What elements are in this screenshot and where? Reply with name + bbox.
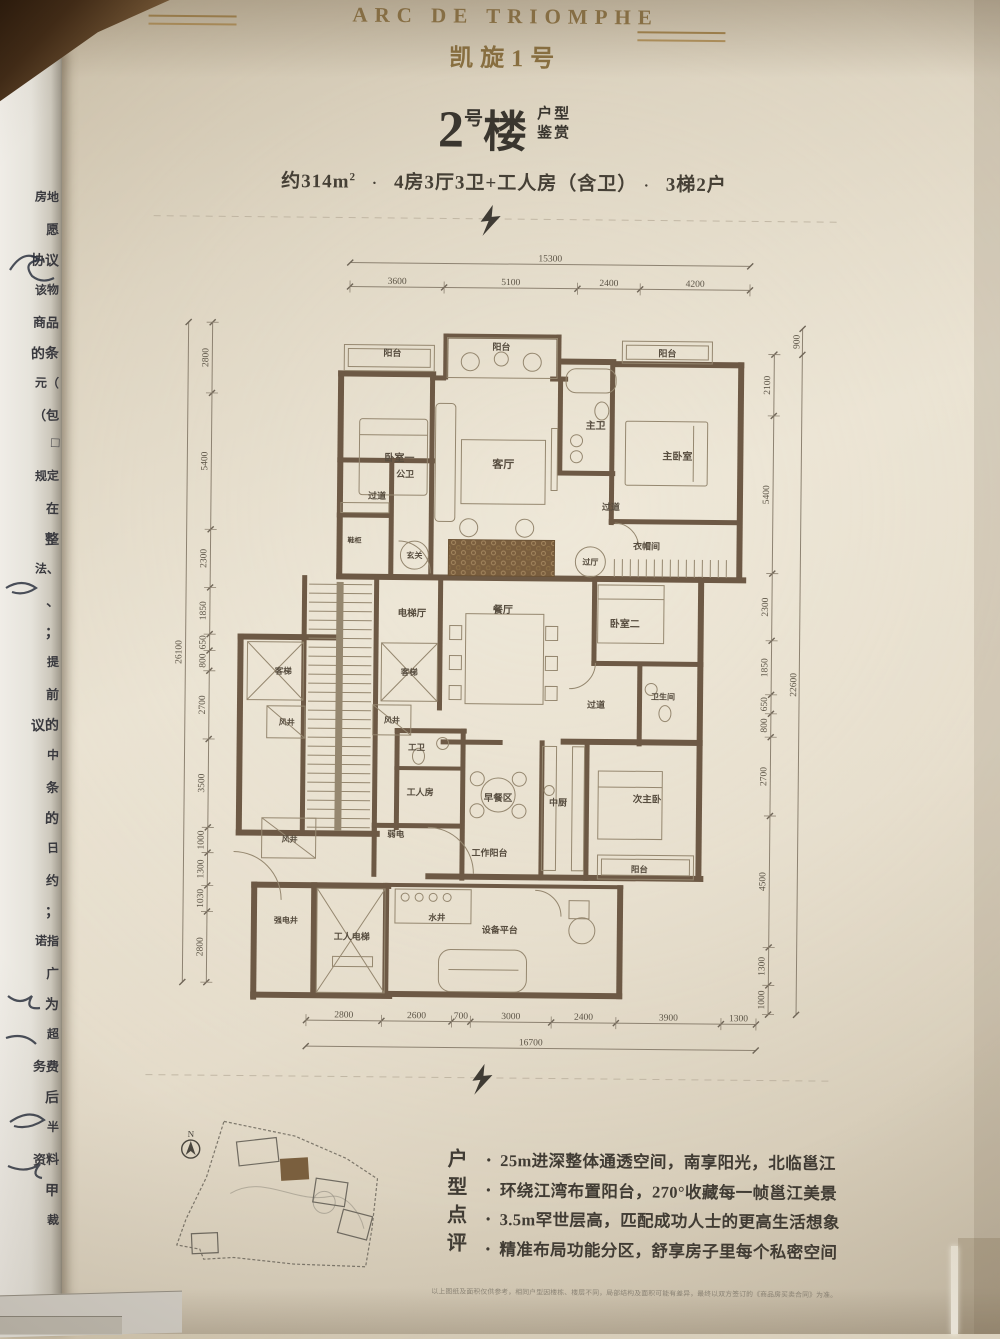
room-label: 风井: [282, 834, 298, 844]
room-label: 工人电梯: [334, 930, 370, 941]
dimension-label: 5100: [501, 278, 520, 288]
dimension-label: 800: [198, 653, 208, 668]
room-label: 主卧室: [662, 450, 692, 463]
room-label: 阳台: [492, 341, 510, 352]
room-label: 客梯: [400, 667, 419, 677]
dimension-label: 2400: [599, 279, 618, 289]
room-label: 工卫: [408, 742, 426, 752]
dimension-label: 650: [199, 635, 209, 650]
dimension-label: 3900: [659, 1014, 678, 1024]
dimension-label: 2800: [196, 937, 206, 956]
room-label: 过道: [368, 490, 386, 501]
dimension-label: 4200: [686, 280, 705, 290]
room-label: 中厨: [549, 796, 567, 807]
dimension-label: 2100: [763, 375, 773, 394]
room-label: 主卫: [586, 419, 606, 432]
dimension-label: 15300: [538, 254, 562, 264]
dimension-label: 1300: [729, 1014, 748, 1024]
room-label: 水井: [427, 912, 446, 922]
room-label: 公卫: [396, 469, 414, 479]
review-bullet: •25m进深整体通透空间，南享阳光，北临邕江: [486, 1146, 840, 1179]
dimension-label: 800: [760, 718, 770, 733]
photo-of-floorplan-brochure: { "header": {"brand": "ARC DE TRIOMPHE",…: [0, 0, 1000, 1334]
handwriting-scribbles: [0, 48, 62, 1334]
plan-walls: [234, 331, 748, 1004]
dimension-label: 1850: [760, 658, 770, 677]
room-labels: 阳台阳台阳台卧室一客厅主卫主卧室公卫过道鞋柜玄关过道衣帽间过厅电梯厅餐厅客梯客梯…: [271, 339, 693, 945]
bullet-dot-icon: •: [487, 1153, 492, 1167]
room-label: 早餐区: [484, 792, 513, 804]
room-label: 风井: [279, 717, 295, 727]
dimension-label: 2800: [201, 348, 211, 367]
room-label: 鞋柜: [348, 536, 362, 545]
underlying-paper-edge-2: [0, 1316, 122, 1335]
review-bullets: •25m进深整体通透空间，南享阳光，北临邕江 •环绕江湾布置阳台，270°收藏每…: [486, 1146, 841, 1267]
dimension-label: 3500: [197, 773, 207, 792]
room-label: 工人房: [407, 786, 434, 797]
dimension-label: 2700: [198, 695, 208, 714]
dimension-label: 700: [454, 1012, 469, 1022]
room-label: 卧室二: [610, 617, 640, 630]
room-label: 衣帽间: [633, 540, 660, 551]
dimension-label: 2600: [407, 1011, 426, 1021]
review-title: 户型点评: [442, 1145, 473, 1263]
dimension-label: 3000: [501, 1012, 520, 1022]
review-block: 户型点评 •25m进深整体通透空间，南享阳光，北临邕江 •环绕江湾布置阳台，27…: [442, 1145, 983, 1268]
dimension-label: 1030: [196, 889, 206, 908]
brochure-page: ARC DE TRIOMPHE 凯旋1号 2号楼户型鉴赏 约314m2·4房3厅…: [0, 0, 1000, 1339]
room-label: 餐厅: [492, 603, 513, 616]
review-bullet: •环绕江湾布置阳台，270°收藏每一帧邕江美景: [486, 1175, 840, 1208]
room-label: 弱电: [387, 829, 405, 839]
north-arrow: N: [182, 1129, 200, 1158]
dimension-label: 1850: [199, 601, 209, 620]
room-label: 工作阳台: [472, 847, 508, 858]
dimension-label: 4500: [758, 872, 768, 891]
room-label: 阳台: [658, 348, 676, 359]
room-label: 过厅: [582, 557, 598, 567]
dimension-label: 16700: [519, 1038, 543, 1048]
dimension-label: 22600: [789, 673, 799, 697]
review-bullet: •3.5m罕世层高，匹配成功人士的更高生活想象: [486, 1205, 840, 1238]
highlighted-building-2: [280, 1157, 309, 1181]
dimension-label: 2400: [574, 1013, 593, 1023]
photo-right-shadow: [974, 0, 1000, 1334]
room-label: 过道: [587, 699, 605, 710]
dimension-label: 900: [792, 334, 802, 349]
page-fold-shadow: [958, 1238, 1000, 1334]
site-plan: N: [177, 1121, 378, 1267]
dimension-label: 2300: [199, 549, 209, 568]
room-label: 卫生间: [651, 691, 675, 701]
dimension-label: 2700: [759, 767, 769, 786]
room-label: 客厅: [491, 457, 514, 471]
dimension-label: 2300: [761, 597, 771, 616]
north-label: N: [188, 1129, 195, 1139]
dimension-label: 1000: [197, 830, 207, 849]
dimension-label: 26100: [174, 640, 184, 664]
left-document-edge: 房地愿协议该物商品的条元（（包□规定在整法、、；提前议的中条的日约；诺指广为超务…: [0, 48, 62, 1334]
room-label: 次主卧: [633, 793, 662, 805]
dimension-label: 1300: [196, 859, 206, 878]
dimension-label: 1000: [757, 990, 767, 1009]
bullet-dot-icon: •: [486, 1241, 491, 1255]
room-label: 设备平台: [482, 924, 518, 935]
room-label: 卧室一: [384, 451, 414, 464]
bullet-dot-icon: •: [486, 1182, 491, 1196]
room-label: 阳台: [383, 347, 401, 358]
room-label: 强电井: [274, 915, 298, 925]
room-label: 客梯: [274, 666, 293, 676]
dimension-label: 5400: [200, 451, 210, 470]
dimension-label: 3600: [388, 277, 407, 287]
room-label: 过道: [602, 501, 620, 512]
room-label: 电梯厅: [398, 607, 427, 619]
floor-plan-canvas: 3600510024004200153002800260070030002400…: [0, 0, 1000, 1339]
room-label: 阳台: [631, 864, 649, 874]
page-fold-highlight: [951, 1246, 958, 1334]
review-bullet: •精准布局功能分区，舒享房子里每个私密空间: [486, 1234, 840, 1267]
bullet-dot-icon: •: [486, 1212, 491, 1226]
room-label: 风井: [384, 715, 400, 725]
dimension-label: 2800: [334, 1010, 353, 1020]
dimension-label: 650: [760, 697, 770, 712]
room-label: 玄关: [406, 550, 422, 560]
dimension-label: 5400: [762, 485, 772, 504]
dimension-label: 1300: [757, 957, 767, 976]
